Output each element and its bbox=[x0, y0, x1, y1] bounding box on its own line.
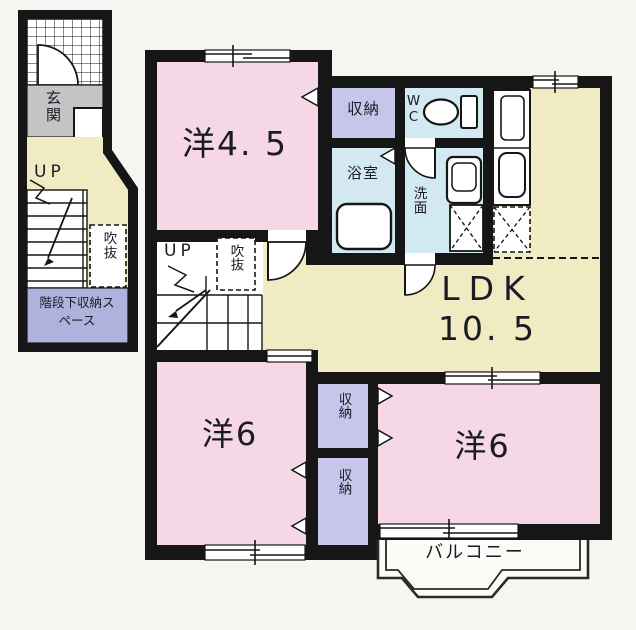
bath-label: 浴室 bbox=[322, 166, 404, 181]
up-label-1f: UP bbox=[34, 164, 65, 181]
floorplan-page: 玄関 UP 吹抜 階段下収納スペース 洋4. 5 収納 WC 浴室 洗面 UP … bbox=[0, 0, 636, 630]
fridge-space bbox=[494, 207, 530, 252]
closet-upper-label: 収納 bbox=[336, 392, 350, 419]
ldk-label: LDK bbox=[390, 272, 585, 305]
washroom-label: 洗面 bbox=[411, 186, 425, 215]
toilet-icon bbox=[424, 96, 477, 128]
void-label-2f: 吹抜 bbox=[228, 244, 242, 271]
washer-space bbox=[450, 205, 483, 251]
bathtub-icon bbox=[337, 204, 391, 249]
closet-lower-label: 収納 bbox=[336, 468, 350, 495]
room-6-left-area bbox=[157, 362, 306, 545]
ldk-area-label: 10. 5 bbox=[390, 312, 585, 345]
stairs-1f bbox=[27, 180, 87, 288]
understair-storage-label: 階段下収納スペース bbox=[39, 294, 115, 329]
kitchen-counter bbox=[493, 90, 530, 205]
doorway-room45 bbox=[268, 230, 306, 242]
doorway-washroom bbox=[405, 253, 435, 265]
closet-top-label: 収納 bbox=[325, 102, 402, 118]
washstand-icon bbox=[447, 157, 481, 203]
doorway-wc bbox=[405, 138, 435, 148]
wc-label: WC bbox=[406, 93, 420, 125]
opening-hall-room6 bbox=[267, 350, 312, 362]
balcony-label: バルコニー bbox=[395, 544, 555, 562]
void-label-1f: 吹抜 bbox=[101, 231, 115, 260]
up-label-2f: UP bbox=[164, 243, 195, 260]
room-6-left-label: 洋6 bbox=[150, 418, 310, 450]
room-45-label: 洋4. 5 bbox=[150, 127, 320, 160]
room-6-right-label: 洋6 bbox=[400, 430, 565, 462]
genkan-label: 玄関 bbox=[45, 90, 60, 124]
